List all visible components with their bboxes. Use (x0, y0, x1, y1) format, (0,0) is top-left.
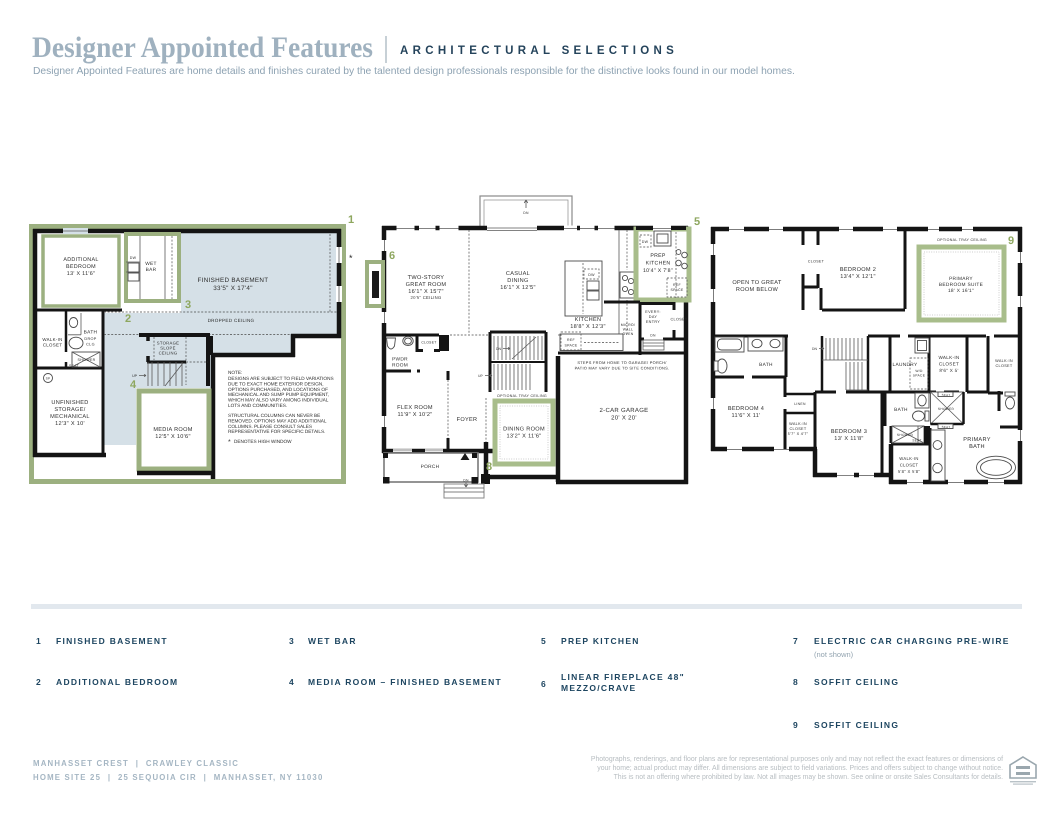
svg-text:BATH: BATH (894, 407, 908, 413)
svg-text:NOTE:: NOTE: (228, 370, 242, 375)
svg-text:SPACE: SPACE (670, 288, 683, 292)
svg-text:13'2" X 11'6": 13'2" X 11'6" (506, 434, 541, 440)
svg-text:CLOSET: CLOSET (790, 427, 807, 431)
svg-text:LAUNDRY: LAUNDRY (893, 362, 918, 368)
svg-text:ADDITIONAL: ADDITIONAL (63, 257, 98, 263)
svg-text:8: 8 (486, 461, 492, 473)
svg-text:12'3" X 10': 12'3" X 10' (55, 421, 85, 427)
svg-text:DINING ROOM: DINING ROOM (503, 427, 545, 433)
svg-text:DINING: DINING (507, 278, 528, 284)
svg-text:WHICH MAY ALSO VARY AMONG INDI: WHICH MAY ALSO VARY AMONG INDIVIDUAL (228, 398, 329, 403)
svg-text:DW: DW (642, 240, 649, 244)
svg-text:KITCHEN: KITCHEN (646, 261, 671, 267)
svg-text:PRIMARY: PRIMARY (963, 437, 991, 443)
svg-text:UP: UP (478, 374, 483, 378)
svg-text:STORAGE/: STORAGE/ (54, 406, 85, 413)
svg-text:OVEN: OVEN (622, 332, 633, 336)
svg-text:WET: WET (145, 261, 157, 267)
svg-text:STEPS FROM HOME TO GARAGE/ POR: STEPS FROM HOME TO GARAGE/ PORCH/ (577, 360, 667, 365)
svg-text:REF: REF (567, 338, 575, 342)
svg-text:REMOVED. OPTIONS MAY ADD ADDIT: REMOVED. OPTIONS MAY ADD ADDITIONAL (228, 418, 327, 423)
svg-text:EVERY-: EVERY- (645, 310, 661, 314)
svg-text:PWDR: PWDR (392, 357, 408, 363)
svg-text:5: 5 (694, 216, 700, 228)
svg-text:DW: DW (130, 256, 137, 260)
svg-text:SEAT: SEAT (912, 439, 921, 443)
svg-text:SPACE: SPACE (913, 374, 926, 378)
svg-text:CEILING: CEILING (159, 351, 178, 356)
svg-text:WALK-IN: WALK-IN (42, 337, 62, 342)
svg-text:CLOSET: CLOSET (43, 343, 62, 348)
svg-text:CLOSET: CLOSET (808, 260, 825, 264)
svg-text:MECHANICAL: MECHANICAL (50, 414, 90, 420)
svg-text:BEDROOM 2: BEDROOM 2 (840, 267, 876, 273)
svg-text:CLOSET: CLOSET (671, 318, 688, 322)
svg-text:20'5" CEILING: 20'5" CEILING (410, 295, 441, 300)
svg-text:CLG: CLG (86, 343, 95, 347)
svg-text:SPACE: SPACE (564, 344, 577, 348)
svg-text:8'6" X 5': 8'6" X 5' (939, 368, 958, 373)
svg-text:1: 1 (348, 214, 354, 226)
svg-text:MICRO/: MICRO/ (621, 323, 635, 327)
svg-text:5'8" X 5'8": 5'8" X 5'8" (898, 469, 921, 474)
svg-text:OPTIONAL TRAY CEILING: OPTIONAL TRAY CEILING (497, 394, 547, 398)
svg-text:WALK-IN: WALK-IN (789, 422, 807, 426)
svg-text:BAR: BAR (146, 267, 157, 273)
svg-text:REPRESENTATIVE FOR SPECIFIC DE: REPRESENTATIVE FOR SPECIFIC DETAILS. (228, 429, 325, 434)
svg-text:3: 3 (185, 299, 191, 311)
svg-text:20' X 20': 20' X 20' (611, 415, 637, 422)
svg-text:ROOM: ROOM (392, 363, 408, 369)
svg-text:10'4" X 7'8": 10'4" X 7'8" (643, 268, 673, 274)
svg-text:FINISHED BASEMENT: FINISHED BASEMENT (198, 277, 269, 284)
svg-text:OPEN TO GREAT: OPEN TO GREAT (732, 280, 782, 286)
svg-text:KITCHEN: KITCHEN (575, 317, 602, 323)
svg-text:CLOSET: CLOSET (939, 362, 959, 367)
svg-text:DN: DN (650, 334, 656, 338)
svg-text:DN: DN (496, 347, 501, 351)
svg-text:PRIMARY: PRIMARY (949, 276, 973, 282)
svg-text:SHOWER: SHOWER (897, 433, 914, 437)
svg-text:DUE TO EXACT HOME EXTERIOR DES: DUE TO EXACT HOME EXTERIOR DESIGN, (228, 381, 324, 386)
svg-text:BEDROOM 4: BEDROOM 4 (728, 406, 764, 412)
svg-text:BATH: BATH (759, 362, 773, 368)
svg-text:PREP: PREP (650, 253, 666, 259)
svg-text:9: 9 (1008, 235, 1014, 247)
svg-text:13' X 11'6": 13' X 11'6" (67, 271, 95, 277)
svg-text:13'4" X 12'1": 13'4" X 12'1" (840, 274, 876, 280)
svg-text:SHOWER: SHOWER (78, 358, 96, 362)
svg-text:BATH: BATH (969, 444, 985, 450)
svg-text:BEDROOM: BEDROOM (66, 264, 96, 270)
svg-text:DN: DN (463, 479, 469, 483)
svg-text:GREAT ROOM: GREAT ROOM (406, 282, 447, 288)
svg-text:16'1" X 12'5": 16'1" X 12'5" (500, 285, 536, 291)
svg-text:STRUCTURAL COLUMNS CAN NEVER B: STRUCTURAL COLUMNS CAN NEVER BE (228, 413, 320, 418)
svg-text:WALK-IN: WALK-IN (995, 359, 1013, 363)
svg-text:UNFINISHED: UNFINISHED (51, 400, 88, 406)
svg-text:BEDROOM SUITE: BEDROOM SUITE (939, 282, 983, 288)
svg-text:SEAT: SEAT (69, 364, 80, 368)
svg-text:11'6" X 11': 11'6" X 11' (732, 413, 761, 419)
svg-text:SEAT: SEAT (942, 425, 951, 429)
svg-text:LOTS AND COMMUNITIES.: LOTS AND COMMUNITIES. (228, 403, 287, 408)
svg-text:11'9" X 10'2": 11'9" X 10'2" (397, 412, 432, 418)
svg-text:18' X 16'1": 18' X 16'1" (948, 288, 974, 294)
svg-text:*: * (349, 253, 353, 263)
svg-text:BEDROOM 3: BEDROOM 3 (831, 429, 867, 435)
svg-text:DENOTES HIGH WINDOW: DENOTES HIGH WINDOW (234, 439, 292, 444)
svg-text:DROPPED CEILING: DROPPED CEILING (208, 318, 255, 323)
svg-text:CASUAL: CASUAL (506, 271, 530, 277)
svg-text:MEDIA ROOM: MEDIA ROOM (153, 427, 192, 433)
svg-text:REF: REF (673, 283, 681, 287)
svg-text:WALK-IN: WALK-IN (899, 456, 918, 461)
svg-text:13' X 11'8": 13' X 11'8" (834, 436, 863, 442)
svg-text:COLUMNS. PLEASE CONSULT SALES: COLUMNS. PLEASE CONSULT SALES (228, 424, 312, 429)
svg-text:DESIGNS ARE SUBJECT TO FIELD V: DESIGNS ARE SUBJECT TO FIELD VARIATIONS (228, 376, 334, 381)
svg-text:6: 6 (389, 250, 395, 262)
svg-text:CLOSET: CLOSET (900, 463, 919, 468)
svg-text:TWO-STORY: TWO-STORY (408, 275, 445, 281)
svg-text:OPTIONAL TRAY CEILING: OPTIONAL TRAY CEILING (937, 238, 987, 242)
svg-text:MECHANICAL AND SUMP PUMP EQUIP: MECHANICAL AND SUMP PUMP EQUIPMENT, (228, 392, 329, 397)
svg-text:SHOWER: SHOWER (938, 407, 955, 411)
svg-text:W/D: W/D (915, 369, 923, 373)
svg-text:PATIO MAY VARY DUE TO SITE CON: PATIO MAY VARY DUE TO SITE CONDITIONS. (575, 366, 670, 371)
svg-text:*: * (228, 439, 231, 446)
svg-text:LINEN: LINEN (794, 402, 806, 406)
svg-text:DROP: DROP (84, 337, 96, 341)
svg-text:CLOSET: CLOSET (996, 364, 1013, 368)
svg-text:CLOSET: CLOSET (421, 341, 436, 345)
svg-text:DAY: DAY (649, 315, 658, 319)
svg-text:UP: UP (132, 374, 138, 378)
svg-text:SEAT: SEAT (942, 393, 951, 397)
svg-text:BATH: BATH (84, 330, 98, 336)
svg-text:SP: SP (46, 377, 51, 381)
svg-text:18'8" X 12'3": 18'8" X 12'3" (570, 324, 606, 330)
svg-text:4: 4 (130, 379, 137, 391)
svg-text:DN: DN (812, 347, 817, 351)
svg-text:2: 2 (125, 313, 131, 325)
svg-text:DW: DW (588, 273, 595, 277)
svg-text:ENTRY: ENTRY (646, 320, 660, 324)
svg-text:PORCH: PORCH (421, 464, 440, 470)
svg-text:DN: DN (523, 211, 529, 215)
svg-text:33'5" X 17'4": 33'5" X 17'4" (213, 285, 253, 292)
svg-text:WALL: WALL (623, 328, 634, 332)
svg-text:5'7" X 4'7": 5'7" X 4'7" (788, 432, 809, 436)
svg-text:FLEX ROOM: FLEX ROOM (397, 405, 433, 411)
svg-text:12'5" X 10'6": 12'5" X 10'6" (155, 434, 191, 440)
svg-text:ROOM BELOW: ROOM BELOW (736, 287, 779, 293)
svg-text:WALK-IN: WALK-IN (938, 355, 959, 360)
svg-text:2-CAR GARAGE: 2-CAR GARAGE (600, 407, 649, 414)
svg-text:OPTIONS PURCHASED, AND LOCATIO: OPTIONS PURCHASED, AND LOCATIONS OF (228, 387, 328, 392)
svg-text:FOYER: FOYER (457, 417, 478, 423)
